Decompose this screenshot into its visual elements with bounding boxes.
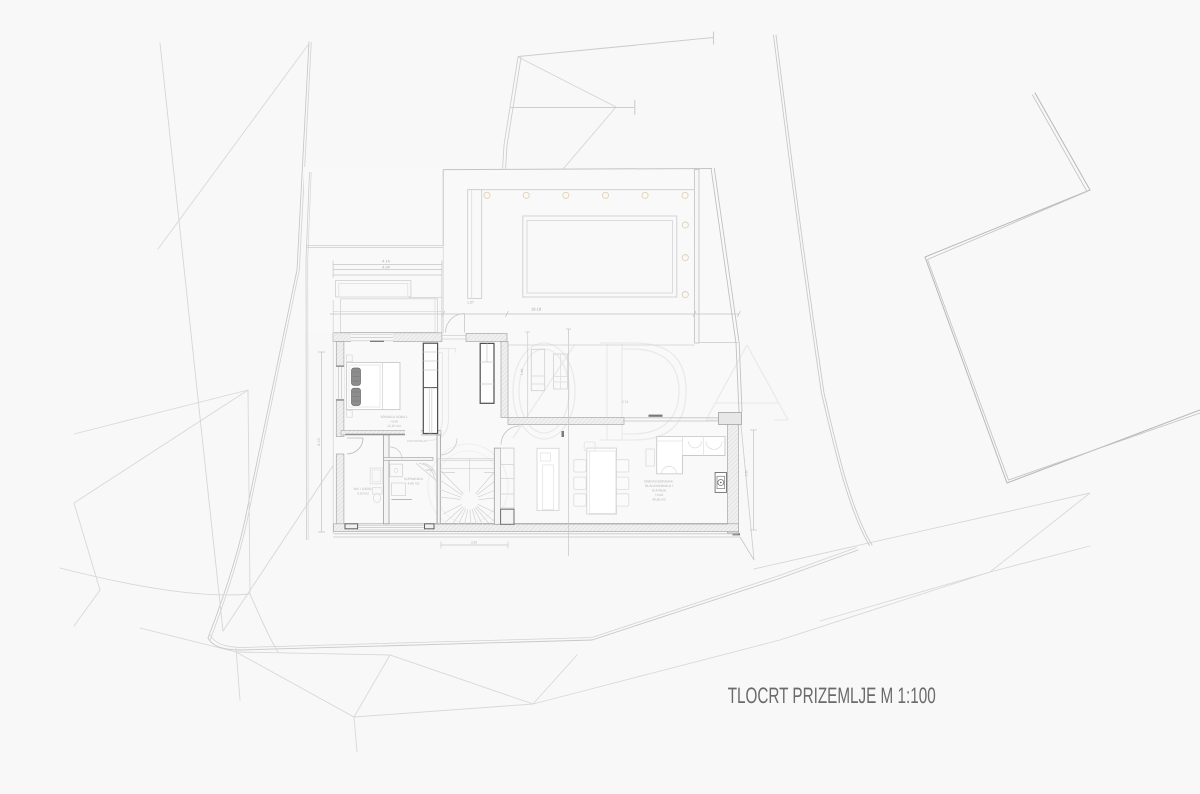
svg-text:WC / GARD.: WC / GARD. bbox=[354, 487, 373, 491]
svg-text:3.30: 3.30 bbox=[471, 541, 477, 545]
svg-text:+0,00: +0,00 bbox=[655, 493, 664, 497]
svg-text:12,10 m2: 12,10 m2 bbox=[387, 424, 401, 428]
svg-text:8.10: 8.10 bbox=[317, 438, 321, 445]
svg-text:4,60 m2: 4,60 m2 bbox=[408, 482, 420, 486]
svg-text:TLOCRT PRIZEMLJE M 1:100: TLOCRT PRIZEMLJE M 1:100 bbox=[728, 683, 936, 708]
svg-text:+0,00: +0,00 bbox=[390, 420, 399, 424]
svg-text:5.90: 5.90 bbox=[745, 470, 749, 477]
svg-text:BLAGOVAONICA I: BLAGOVAONICA I bbox=[645, 484, 673, 488]
svg-text:KUPAONICA: KUPAONICA bbox=[404, 477, 424, 481]
svg-text:DNEVNI BORAVAK,: DNEVNI BORAVAK, bbox=[644, 480, 674, 484]
svg-text:4.14: 4.14 bbox=[382, 260, 389, 264]
svg-text:1.48: 1.48 bbox=[520, 369, 524, 376]
svg-text:PREDSOBLJE: PREDSOBLJE bbox=[407, 439, 427, 443]
svg-text:1.07: 1.07 bbox=[467, 301, 474, 305]
svg-text:48,60 m2: 48,60 m2 bbox=[652, 498, 666, 502]
svg-text:SPAVACA SOBA 1: SPAVACA SOBA 1 bbox=[380, 415, 407, 419]
svg-text:2.74: 2.74 bbox=[622, 400, 629, 404]
svg-text:3,20 m2: 3,20 m2 bbox=[357, 492, 369, 496]
svg-text:KUHINJA: KUHINJA bbox=[652, 489, 667, 493]
svg-text:18.18: 18.18 bbox=[531, 307, 542, 312]
svg-text:4.04: 4.04 bbox=[382, 265, 389, 269]
